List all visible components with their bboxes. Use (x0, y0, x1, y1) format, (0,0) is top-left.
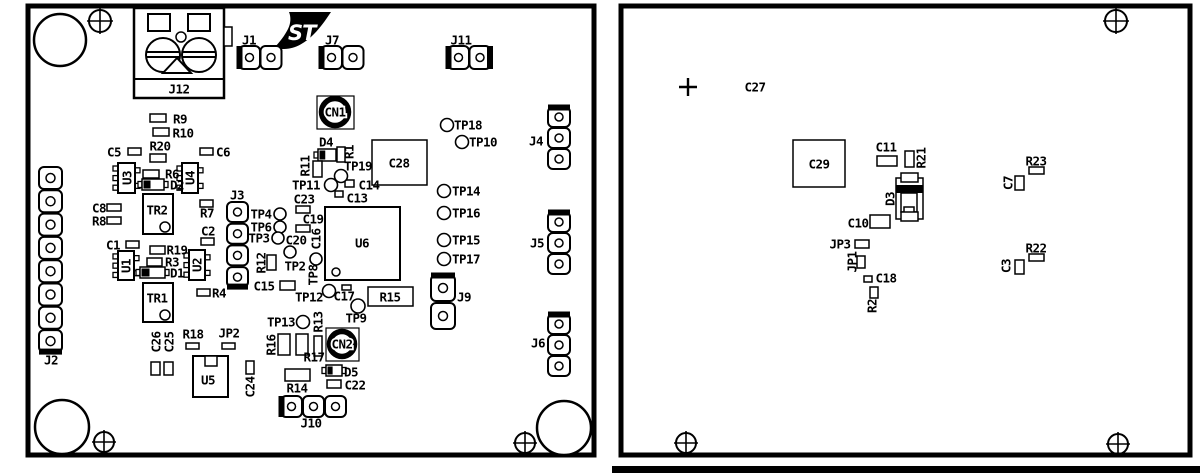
pad-c24 (246, 361, 254, 374)
label-J6: J6 (531, 336, 545, 351)
label-TP17: TP17 (452, 252, 480, 267)
label-J3: J3 (230, 188, 244, 203)
pad-c3 (1015, 260, 1024, 274)
terminal-j12-screw (182, 38, 216, 72)
test-point-tp16 (438, 207, 451, 220)
label-JP3: JP3 (829, 237, 850, 252)
pin-header-j1-hole (267, 54, 275, 62)
label-TR2: TR2 (146, 203, 167, 218)
pad-c25 (164, 362, 173, 375)
pin-header-j1-hole (246, 54, 254, 62)
diode-d4-cathode-band (320, 151, 326, 160)
pin-header-j2-hole (46, 197, 55, 206)
label-TP16: TP16 (452, 206, 480, 221)
label-J7: J7 (325, 33, 339, 48)
label-TP11: TP11 (292, 178, 320, 193)
pad-r16 (278, 334, 290, 355)
pin-header-j1-pin1-mark (237, 46, 243, 69)
pad-r2 (870, 287, 878, 298)
pin-header-j2-hole (46, 267, 55, 276)
label-J9: J9 (457, 290, 471, 305)
pin-header-j10-hole (332, 403, 340, 411)
pin-header-j3-hole (234, 230, 242, 238)
label-TP18: TP18 (454, 118, 482, 133)
pin-header-j3-hole (234, 273, 242, 281)
pad-c10 (870, 215, 890, 228)
st-logo-letters: ST (288, 21, 318, 45)
label-TP12: TP12 (295, 290, 323, 305)
label-R14: R14 (286, 381, 307, 396)
label-R9: R9 (173, 112, 187, 127)
label-C28: C28 (388, 156, 409, 171)
label-U5: U5 (201, 373, 215, 388)
pad-c22 (327, 380, 341, 388)
pad-r3 (147, 258, 162, 266)
diode-d1-cathode-band (142, 269, 150, 277)
label-TP8: TP8 (306, 264, 321, 285)
pad-c11 (877, 156, 897, 166)
pad-r6 (143, 170, 159, 178)
pad-r11 (313, 161, 322, 177)
pad-jp3 (855, 240, 869, 248)
pin-header-j2-hole (46, 243, 55, 252)
label-C11: C11 (875, 140, 896, 155)
diode-d3-cap-bottom (901, 212, 918, 221)
label-CN1: CN1 (324, 105, 345, 120)
pcb-drawing-canvas: STJ12J1J7J11CN1R9R10R20C5C6U3U4R6D2C8R8T… (0, 0, 1200, 473)
test-point-tp15 (438, 234, 451, 247)
diode-d5-cathode-band (328, 367, 333, 375)
label-R23: R23 (1025, 154, 1046, 169)
pad-c1 (126, 241, 139, 248)
test-point-tp6 (274, 221, 286, 233)
label-J10: J10 (300, 416, 321, 431)
label-C20: C20 (285, 233, 306, 248)
label-J4: J4 (529, 134, 543, 149)
pin-header-j10-pin1-mark (279, 396, 285, 417)
label-C5: C5 (107, 145, 121, 160)
pin-header-j2-hole (46, 220, 55, 229)
label-TP19: TP19 (344, 159, 372, 174)
pin-header-j4-hole (555, 134, 563, 142)
label-C27: C27 (744, 80, 765, 95)
pin-header-j9-hole (439, 284, 448, 293)
pin-header-j9-pin1-mark (431, 273, 455, 279)
pcb-assembly-drawing: STJ12J1J7J11CN1R9R10R20C5C6U3U4R6D2C8R8T… (0, 0, 1200, 473)
label-R1: R1 (342, 145, 357, 159)
pad-c18 (864, 276, 872, 282)
label-R11: R11 (298, 155, 313, 176)
pin-header-j11-pin1-mark (446, 46, 452, 69)
pin-header-j6-hole (555, 320, 563, 328)
label-TP10: TP10 (469, 135, 497, 150)
terminal-j12-pin-hole (176, 32, 186, 42)
label-C2: C2 (201, 224, 215, 239)
label-R13: R13 (311, 311, 326, 332)
ic-u6-pin1 (332, 268, 340, 276)
pad-c15 (280, 281, 295, 290)
pin-header-j11-hole (455, 54, 463, 62)
label-J12: J12 (168, 82, 189, 97)
pin-header-j4-hole (555, 155, 563, 163)
test-point-tp2 (284, 246, 296, 258)
terminal-j12-tab (224, 27, 232, 46)
pin-header-j6-hole (555, 341, 563, 349)
pin-header-j2-hole (46, 337, 55, 346)
label-C25: C25 (162, 331, 177, 352)
test-point-tp4 (274, 208, 286, 220)
label-C3: C3 (999, 259, 1014, 273)
test-point-tp18 (441, 119, 454, 132)
mounting-hole (34, 14, 86, 66)
label-TP2: TP2 (284, 259, 305, 274)
pin-header-j6-hole (555, 362, 563, 370)
terminal-j12-slot (188, 14, 210, 31)
label-U6: U6 (355, 236, 369, 251)
pin-header-j10-hole (310, 403, 318, 411)
transistor-tr1-pin (160, 310, 170, 320)
pad-r10 (153, 128, 169, 136)
label-R10: R10 (172, 126, 193, 141)
pad-c2 (201, 238, 214, 245)
test-point-tp10 (456, 136, 469, 149)
pad-r20 (150, 154, 166, 162)
mounting-hole (35, 400, 89, 454)
terminal-j12-slot (148, 14, 170, 31)
test-point-tp13 (297, 316, 310, 329)
panel-edge-bar (612, 466, 1200, 473)
label-C1: C1 (106, 238, 120, 253)
pin-header-j2-hole (46, 290, 55, 299)
label-C13: C13 (346, 191, 367, 206)
diode-d3-cap-top (901, 173, 918, 182)
label-TP13: TP13 (267, 315, 295, 330)
label-J11: J11 (450, 33, 471, 48)
pad-r9 (150, 114, 166, 122)
pin-header-j10-hole (288, 403, 296, 411)
label-U4: U4 (183, 171, 198, 185)
transistor-tr2-pin (160, 222, 170, 232)
pad-c8 (107, 204, 121, 211)
mounting-hole (537, 401, 591, 455)
label-R15: R15 (379, 290, 400, 305)
label-C29: C29 (808, 157, 829, 172)
label-C16: C16 (309, 228, 324, 249)
label-C24: C24 (243, 376, 258, 397)
label-TR1: TR1 (146, 291, 167, 306)
board-back-outline (621, 6, 1190, 455)
pad-r8 (107, 217, 121, 224)
label-J1: J1 (242, 33, 256, 48)
pin-header-j3-mark (227, 284, 248, 290)
label-C6: C6 (216, 145, 230, 160)
label-TP15: TP15 (452, 233, 480, 248)
pin-header-j7-hole (328, 54, 336, 62)
diode-d2-cathode-band (144, 181, 151, 189)
pin-header-j9-hole (439, 312, 448, 321)
label-R8: R8 (92, 214, 106, 229)
pin-header-j7-pin1-mark (319, 46, 325, 69)
pin-header-j4-pin1-mark (548, 105, 570, 111)
pin-header-j7-hole (349, 54, 357, 62)
pin-header-j2-hole (46, 313, 55, 322)
pad-r14 (285, 369, 310, 381)
pad-c13 (335, 191, 343, 197)
label-D3: D3 (883, 192, 898, 206)
pad-c7 (1015, 176, 1024, 190)
pad-c6 (200, 148, 213, 155)
label-C10: C10 (847, 216, 868, 231)
label-C23: C23 (293, 192, 314, 207)
label-R16: R16 (264, 334, 279, 355)
label-R21: R21 (914, 147, 929, 168)
pad-jp2 (222, 343, 235, 349)
label-R18: R18 (182, 327, 203, 342)
label-D2: D2 (170, 178, 184, 193)
label-R7: R7 (200, 206, 214, 221)
label-R4: R4 (212, 286, 226, 301)
label-D4: D4 (319, 135, 333, 150)
pad-c26 (151, 362, 160, 375)
pin-header-j5-pin1-mark (548, 210, 570, 216)
pad-r19 (150, 246, 165, 254)
diode-d3-band (896, 185, 923, 193)
label-U2: U2 (190, 258, 205, 272)
label-JP1: JP1 (845, 251, 860, 272)
label-TP3: TP3 (248, 231, 269, 246)
pin-header-j2-hole (46, 174, 55, 183)
label-TP14: TP14 (452, 184, 480, 199)
label-U3: U3 (120, 171, 135, 185)
label-D1: D1 (170, 266, 184, 281)
label-JP2: JP2 (218, 326, 239, 341)
pin-header-j4-hole (555, 113, 563, 121)
pin-header-j11-mark (487, 46, 493, 69)
test-point-tp3 (272, 232, 284, 244)
pin-header-j6-pin1-mark (548, 312, 570, 318)
label-R20: R20 (149, 139, 170, 154)
label-C22: C22 (344, 378, 365, 393)
label-C17: C17 (333, 289, 354, 304)
label-J5: J5 (530, 236, 544, 251)
pin-header-j11-hole (476, 54, 484, 62)
label-U1: U1 (119, 259, 134, 273)
label-R17: R17 (303, 350, 324, 365)
label-C7: C7 (1001, 176, 1016, 190)
test-point-tp8 (310, 253, 322, 265)
label-CN2: CN2 (331, 337, 352, 352)
label-C19: C19 (302, 212, 323, 227)
label-TP9: TP9 (345, 311, 366, 326)
label-R12: R12 (254, 252, 269, 273)
pin-header-j5-hole (555, 260, 563, 268)
pad-c14 (345, 180, 354, 187)
pin-header-j3-hole (234, 208, 242, 216)
label-C18: C18 (875, 271, 896, 286)
test-point-tp14 (438, 185, 451, 198)
label-R22: R22 (1025, 241, 1046, 256)
label-J2: J2 (44, 353, 58, 368)
label-C15: C15 (253, 279, 274, 294)
ic-u5-notch (205, 356, 217, 366)
pin-header-j5-hole (555, 239, 563, 247)
pin-header-j3-hole (234, 251, 242, 259)
test-point-tp17 (438, 253, 451, 266)
pad-c5 (128, 148, 141, 155)
pad-r18 (186, 343, 199, 349)
pad-r4 (197, 289, 210, 296)
pin-header-j5-hole (555, 218, 563, 226)
label-R2: R2 (865, 299, 880, 313)
